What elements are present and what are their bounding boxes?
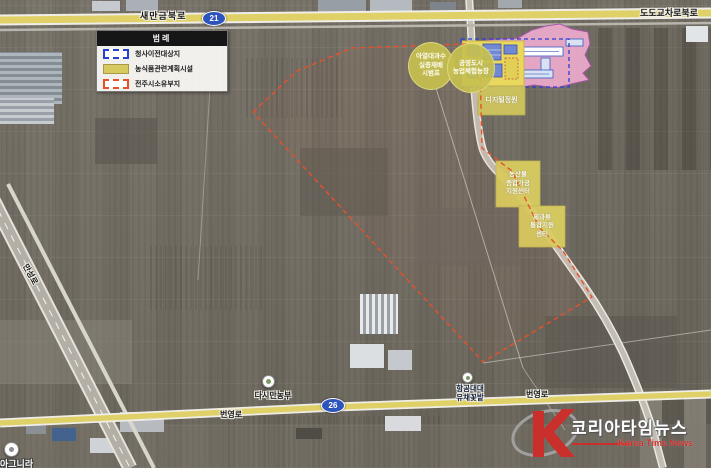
route-badge-21: 21 (202, 11, 226, 26)
watermark-logo: 코리아타임뉴스 Korea Time News (505, 400, 711, 462)
road-label-dodo-junction: 도도교차로북로 (640, 6, 698, 19)
zone-digital-garden: 디지털정원 (478, 86, 525, 115)
route-badge-26: 26 (321, 398, 345, 413)
legend-item-label: 농식품관련계획시설 (135, 64, 193, 74)
legend-item: 농식품관련계획시설 (97, 61, 227, 76)
road-label-byeongyeong-2: 번영로 (526, 389, 548, 400)
watermark-english: Korea Time News (613, 438, 693, 448)
poi-label-bottom-left: 아그니라 (0, 457, 64, 468)
red-dashed-swatch (103, 79, 129, 89)
legend-item: 청사이전대상지 (97, 46, 227, 61)
satellite-map: 범례 청사이전대상지 농식품관련계획시설 전주시소유부지 아열대과수 실증재배 … (0, 0, 711, 468)
legend-item: 전주시소유부지 (97, 76, 227, 91)
yellow-fill-swatch (103, 64, 129, 74)
zone-confectionery: 제과류 통합지원 센터 (519, 206, 565, 247)
legend-title: 범례 (97, 31, 227, 46)
road-label-saemangeum: 새만금북로 (140, 9, 186, 22)
zone-agro-processing: 농산물 종합가공 지원센터 (496, 161, 540, 207)
poi-marker-icon (262, 375, 275, 388)
poi-label-dasiman-farm: 다시만농부 (238, 390, 308, 401)
watermark-korean: 코리아타임뉴스 (571, 414, 687, 439)
legend: 범례 청사이전대상지 농식품관련계획시설 전주시소유부지 (96, 30, 228, 92)
legend-item-label: 전주시소유부지 (135, 79, 180, 89)
poi-marker-icon (462, 372, 473, 383)
blue-dashed-swatch (103, 49, 129, 59)
red-dashed-boundary (253, 44, 592, 362)
poi-label-aviation-field: 항공대대 유채꽃밭 (441, 384, 499, 403)
poi-marker-icon (4, 442, 19, 457)
road-label-byeongyeong-1: 번영로 (220, 409, 242, 420)
legend-item-label: 청사이전대상지 (135, 49, 180, 59)
